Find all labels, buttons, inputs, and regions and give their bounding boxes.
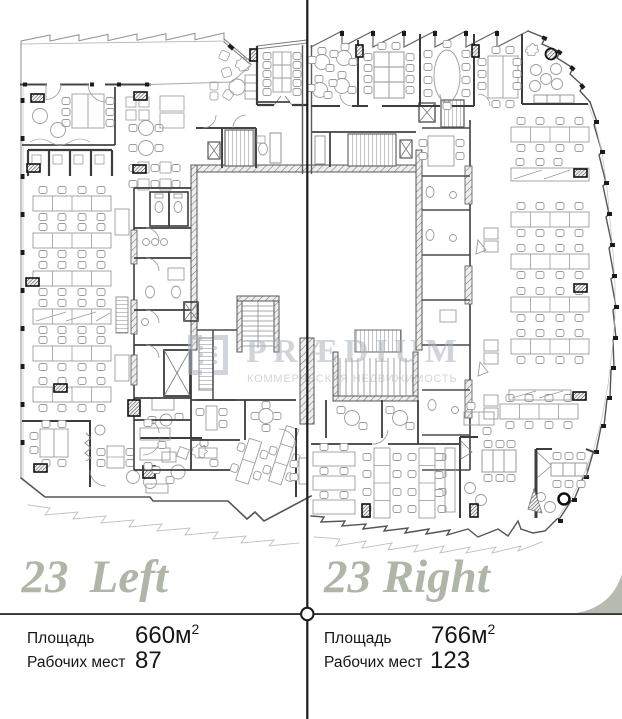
svg-text:123: 123 (430, 647, 470, 674)
svg-text:23 Left: 23 Left (21, 551, 170, 603)
svg-text:660м2: 660м2 (135, 621, 200, 649)
svg-text:PRÆDIUM: PRÆDIUM (246, 333, 463, 370)
svg-text:Рабочих мест: Рабочих мест (27, 654, 126, 671)
svg-text:Площадь: Площадь (324, 630, 391, 647)
svg-text:Площадь: Площадь (27, 630, 94, 647)
svg-text:23 Right: 23 Right (323, 551, 492, 603)
svg-text:87: 87 (135, 647, 162, 674)
svg-text:766м2: 766м2 (431, 621, 496, 649)
svg-text:КОММЕРЧЕСКАЯ НЕДВИЖИМОСТЬ: КОММЕРЧЕСКАЯ НЕДВИЖИМОСТЬ (247, 373, 457, 385)
svg-text:Рабочих мест: Рабочих мест (324, 654, 423, 671)
